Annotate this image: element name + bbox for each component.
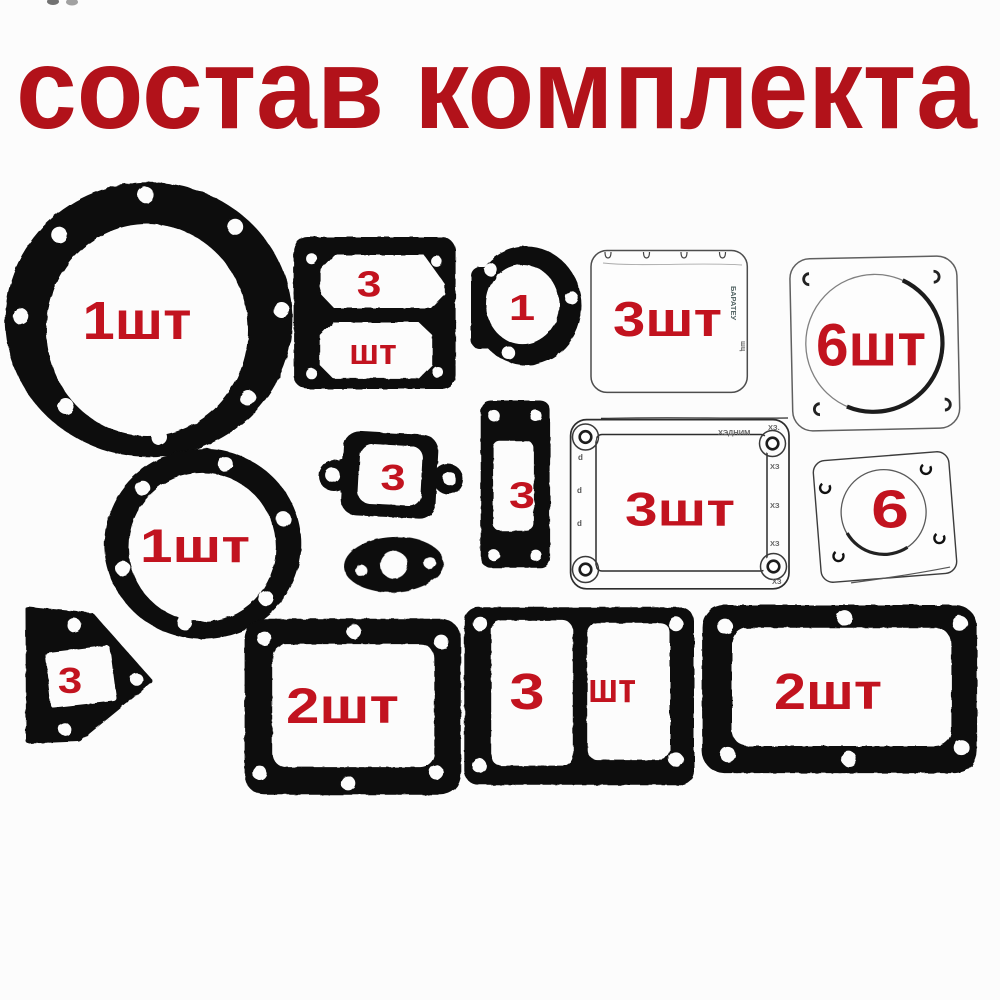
svg-text:шт: шт [349,331,397,372]
svg-text:шц: шц [739,341,746,352]
svg-text:2шт: 2шт [286,677,399,734]
svg-text:3: 3 [58,660,82,701]
svg-text:2шт: 2шт [774,663,882,720]
svg-text:1шт: 1шт [83,291,192,351]
svg-text:6: 6 [871,479,909,538]
svg-text:3шт: 3шт [625,484,735,537]
svg-text:ХЗ: ХЗ [770,501,780,510]
svg-text:d: d [577,486,582,495]
svg-text:3: 3 [357,263,382,304]
svg-text:3: 3 [509,664,544,721]
svg-text:состав комплекта: состав комплекта [16,25,978,153]
svg-text:d: d [577,519,582,528]
svg-text:шт: шт [588,664,636,711]
svg-text:БАРАТЕУ: БАРАТЕУ [729,286,738,320]
svg-text:ХЗ: ХЗ [770,539,780,548]
svg-text:ХЗ: ХЗ [770,462,780,471]
svg-text:1шт: 1шт [140,520,250,573]
svg-text:ХЭДНИМ: ХЭДНИМ [718,428,750,437]
svg-text:ХЗ: ХЗ [772,577,782,586]
svg-text:6шт: 6шт [816,312,926,379]
svg-text:3шт: 3шт [613,293,722,347]
svg-text:3: 3 [509,475,535,516]
svg-text:ХЗ.: ХЗ. [768,423,780,432]
svg-text:3: 3 [380,457,405,498]
svg-text:d: d [578,453,583,462]
svg-text:1: 1 [509,287,535,328]
